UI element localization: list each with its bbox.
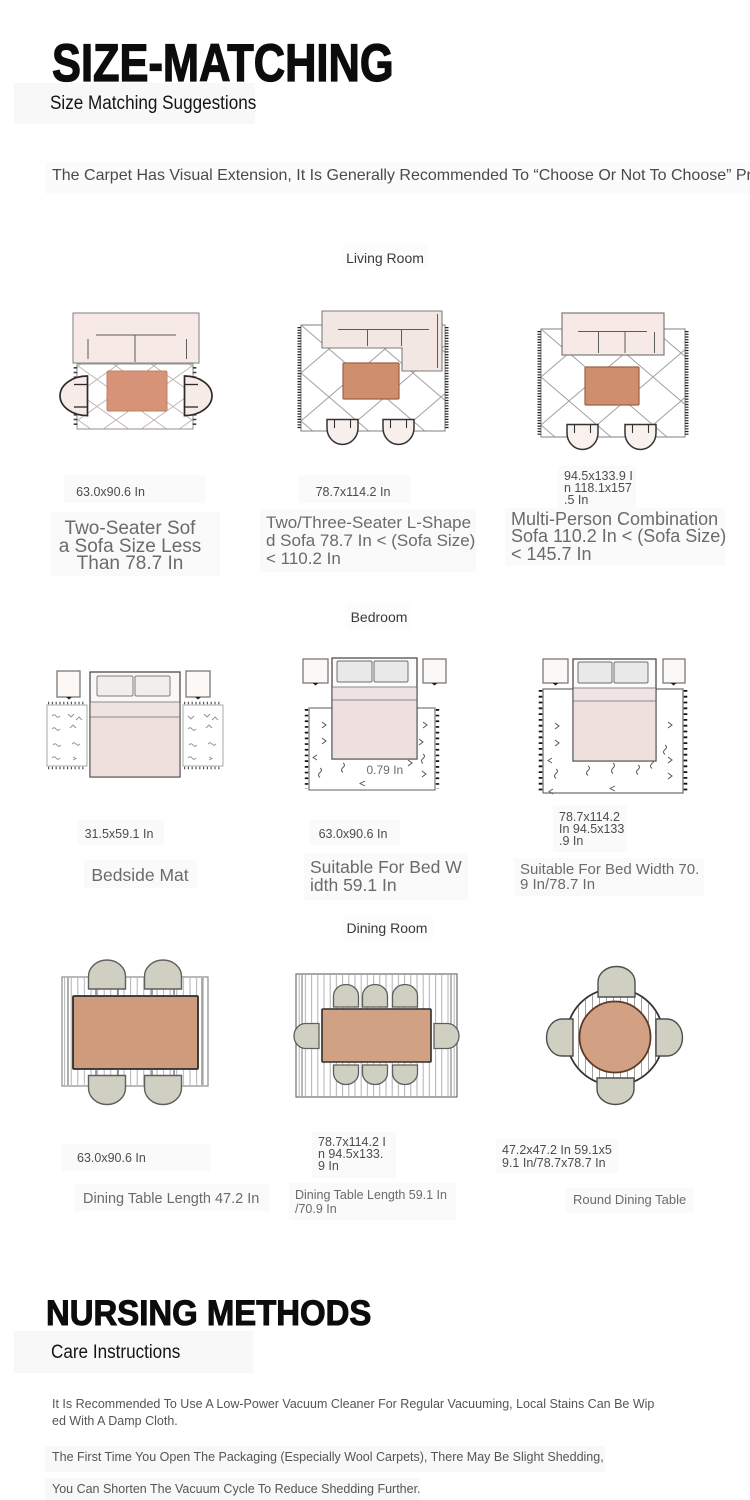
svg-text:0.79 In: 0.79 In (367, 763, 404, 777)
